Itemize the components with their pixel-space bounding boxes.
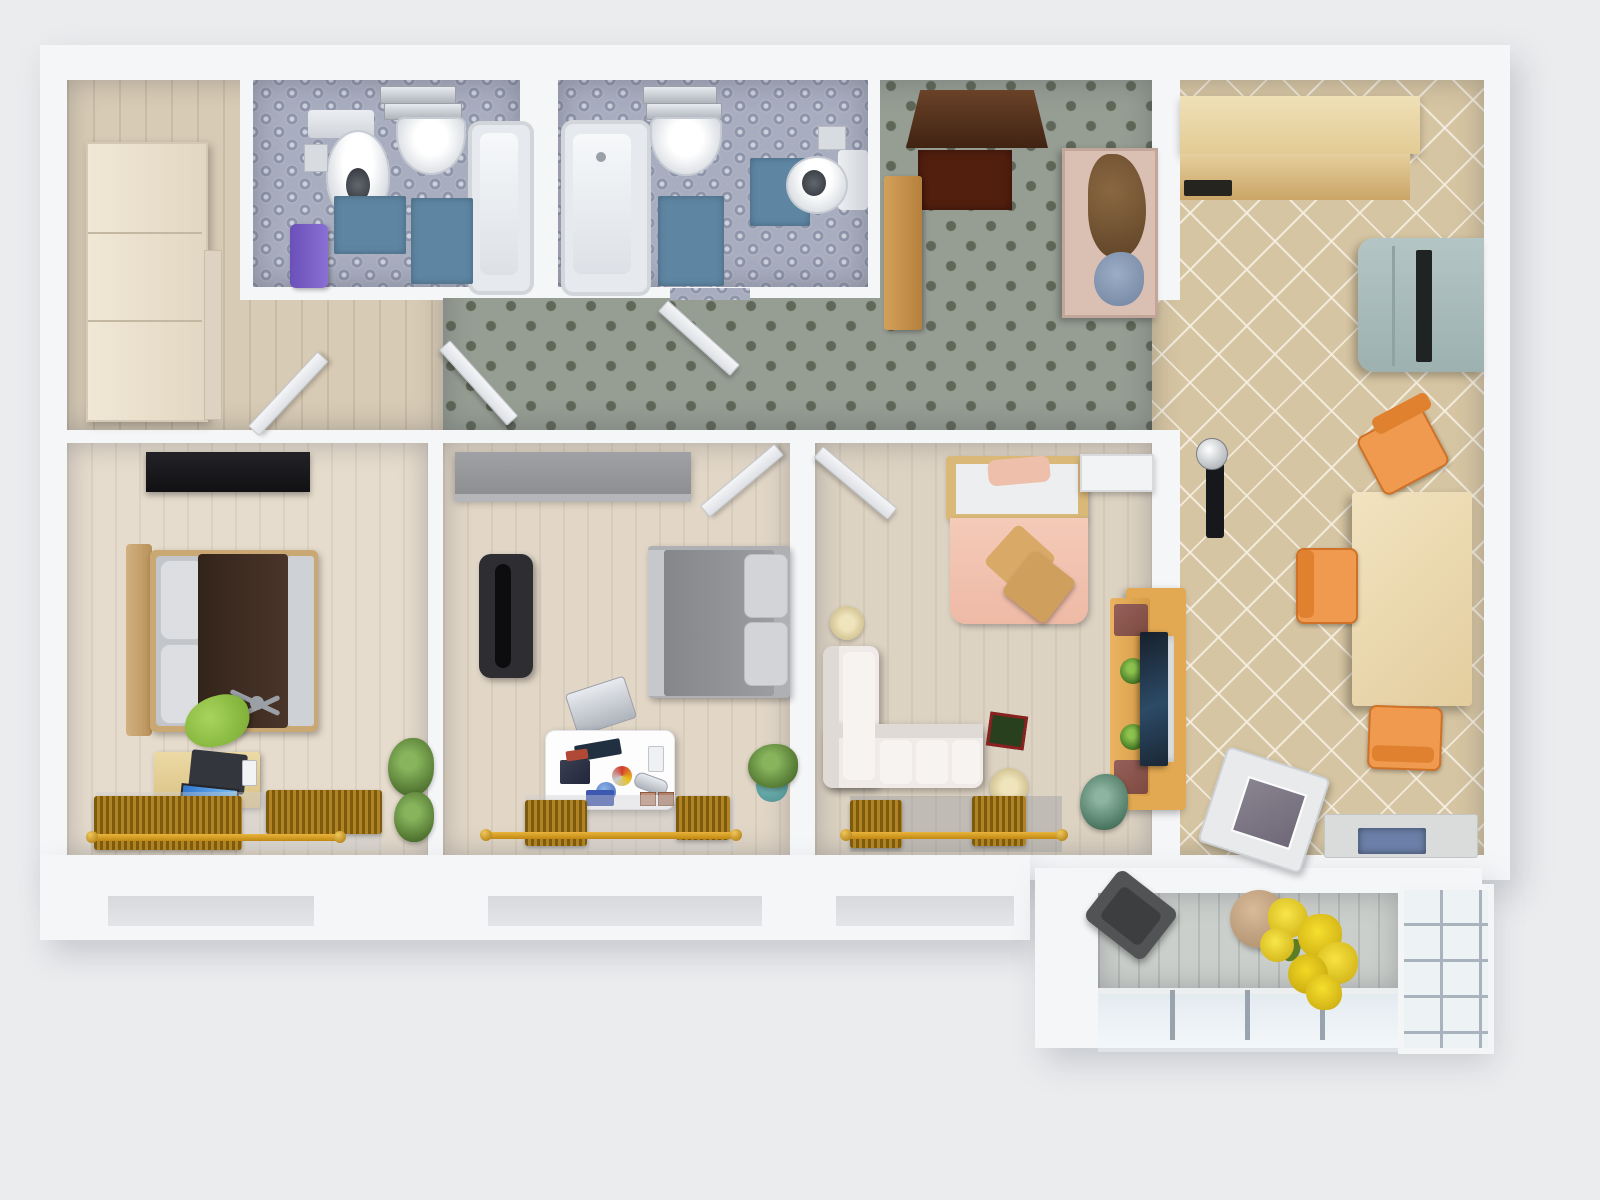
bed2-desk-artboard bbox=[560, 760, 590, 784]
living-sofa-cushion-5 bbox=[952, 740, 980, 784]
bed2-pillow-bottom bbox=[744, 622, 788, 686]
bed1-rail-finial-right bbox=[334, 831, 346, 843]
bed2-dark-cabinet-stripe bbox=[495, 564, 511, 668]
bed1-radiator-right bbox=[266, 790, 382, 834]
living-board-game bbox=[986, 712, 1028, 751]
balcony-window-wall bbox=[1398, 884, 1494, 1054]
living-curtain-rail bbox=[846, 832, 1062, 839]
bed1-chair-hub bbox=[250, 696, 264, 710]
window-bay-3 bbox=[836, 896, 1014, 926]
bath2-drain bbox=[596, 152, 606, 162]
front-door bbox=[906, 90, 1048, 148]
bath1-mat-left bbox=[334, 196, 406, 254]
bed2-desk-palette bbox=[612, 766, 632, 786]
window-bay-1 bbox=[108, 896, 314, 926]
bed1-foot-sheet bbox=[288, 556, 314, 726]
balcony-rail-mullion-1 bbox=[1170, 990, 1175, 1040]
bed1-radiator-left bbox=[94, 796, 242, 850]
bath2-doorway-tiles bbox=[670, 288, 750, 300]
bath1-mat-right bbox=[411, 198, 473, 284]
bed2-curtain-rail bbox=[486, 832, 736, 839]
living-rail-finial-right bbox=[1056, 829, 1068, 841]
kitchen-sink-basin bbox=[1358, 828, 1426, 854]
living-bed-pillow bbox=[987, 455, 1051, 486]
bed1-plant bbox=[388, 738, 434, 796]
balcony-rail-mullion-2 bbox=[1245, 990, 1250, 1040]
bed2-wardrobe-front bbox=[455, 494, 691, 502]
bed1-headboard bbox=[126, 544, 152, 736]
living-rail-finial-left bbox=[840, 829, 852, 841]
bed1-curtain-rail bbox=[92, 834, 340, 841]
bath2-paper-holder bbox=[818, 126, 846, 150]
floorplan-stage bbox=[0, 0, 1600, 1200]
living-sofa-cushion-4 bbox=[916, 740, 948, 784]
bed2-wardrobe bbox=[455, 452, 691, 498]
kitchen-dining-table bbox=[1352, 492, 1472, 706]
living-radiator-left bbox=[850, 800, 902, 848]
bed1-rail-finial-left bbox=[86, 831, 98, 843]
bath1-bathtub-basin bbox=[480, 133, 518, 275]
bath2-shelf-icon bbox=[643, 86, 717, 104]
bath2-mat-left bbox=[658, 196, 724, 286]
bath1-towel-purple bbox=[290, 224, 328, 288]
bed1-phone bbox=[242, 760, 257, 786]
bed2-radiator-left bbox=[525, 800, 587, 846]
kitchen-wall-phone-dial bbox=[1196, 438, 1228, 470]
doormat bbox=[918, 150, 1012, 210]
living-dresser bbox=[1080, 454, 1154, 492]
bed2-plant bbox=[748, 744, 798, 788]
bath2-toilet-bowl-hole bbox=[802, 170, 826, 196]
living-sofa-back-left bbox=[823, 646, 839, 788]
shoe-cabinet bbox=[884, 176, 922, 330]
kitchen-cooktop bbox=[1184, 180, 1232, 196]
balcony-flower-6 bbox=[1260, 928, 1294, 962]
balcony-flower-5 bbox=[1306, 974, 1342, 1010]
bath1-paper-holder bbox=[304, 144, 328, 172]
living-tv-screen bbox=[1140, 632, 1168, 766]
living-pouf-small bbox=[830, 606, 864, 640]
hall-wardrobe bbox=[86, 142, 208, 422]
bed1-dresser bbox=[146, 452, 310, 492]
bath1-shelf-icon bbox=[380, 86, 456, 104]
bed2-desk-phone bbox=[648, 746, 664, 772]
bed2-rail-finial-right bbox=[730, 829, 742, 841]
kitchen-fridge-vent bbox=[1416, 250, 1432, 362]
kitchen-chair-bottom-back bbox=[1372, 745, 1435, 763]
kitchen-chair-left-back bbox=[1298, 550, 1314, 618]
living-plant bbox=[1080, 774, 1128, 830]
living-sofa-cushion-3 bbox=[880, 740, 912, 784]
cloth-blue bbox=[1094, 252, 1144, 306]
hall-wardrobe-side-unit bbox=[204, 250, 222, 420]
window-bay-2 bbox=[488, 896, 762, 926]
kitchen-fridge-seam bbox=[1392, 246, 1395, 366]
bed2-rail-finial-left bbox=[480, 829, 492, 841]
bed2-pillow-top bbox=[744, 554, 788, 618]
bed1-plant-lower bbox=[394, 792, 434, 842]
living-sofa-cushion-2 bbox=[843, 660, 875, 780]
hall-wardrobe-divider-2 bbox=[88, 320, 202, 322]
kitchen-upper-cabinet bbox=[1180, 96, 1420, 154]
hall-wardrobe-divider-1 bbox=[88, 232, 202, 234]
